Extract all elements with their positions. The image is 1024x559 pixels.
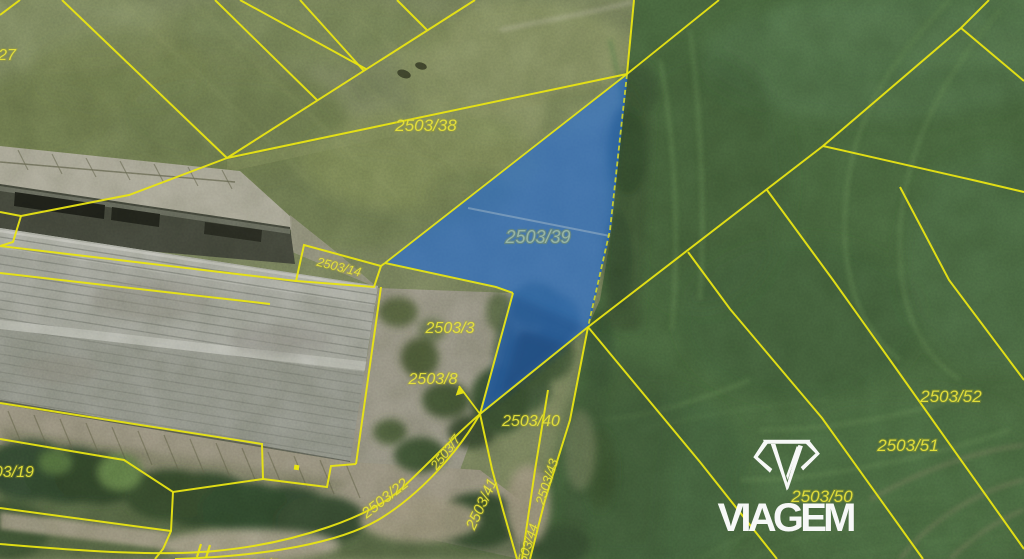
svg-text:2503/38: 2503/38 (394, 116, 457, 135)
svg-text:27: 27 (0, 47, 17, 64)
svg-text:2503/52: 2503/52 (919, 387, 982, 406)
svg-text:2503/51: 2503/51 (876, 436, 938, 455)
svg-text:2503/8: 2503/8 (408, 371, 458, 388)
svg-text:2503/40: 2503/40 (501, 413, 560, 430)
svg-text:2503/3: 2503/3 (425, 320, 475, 337)
svg-text:VIAGEM: VIAGEM (718, 496, 857, 540)
svg-text:2503/39: 2503/39 (504, 227, 570, 247)
svg-text:2503/19: 2503/19 (0, 464, 34, 481)
